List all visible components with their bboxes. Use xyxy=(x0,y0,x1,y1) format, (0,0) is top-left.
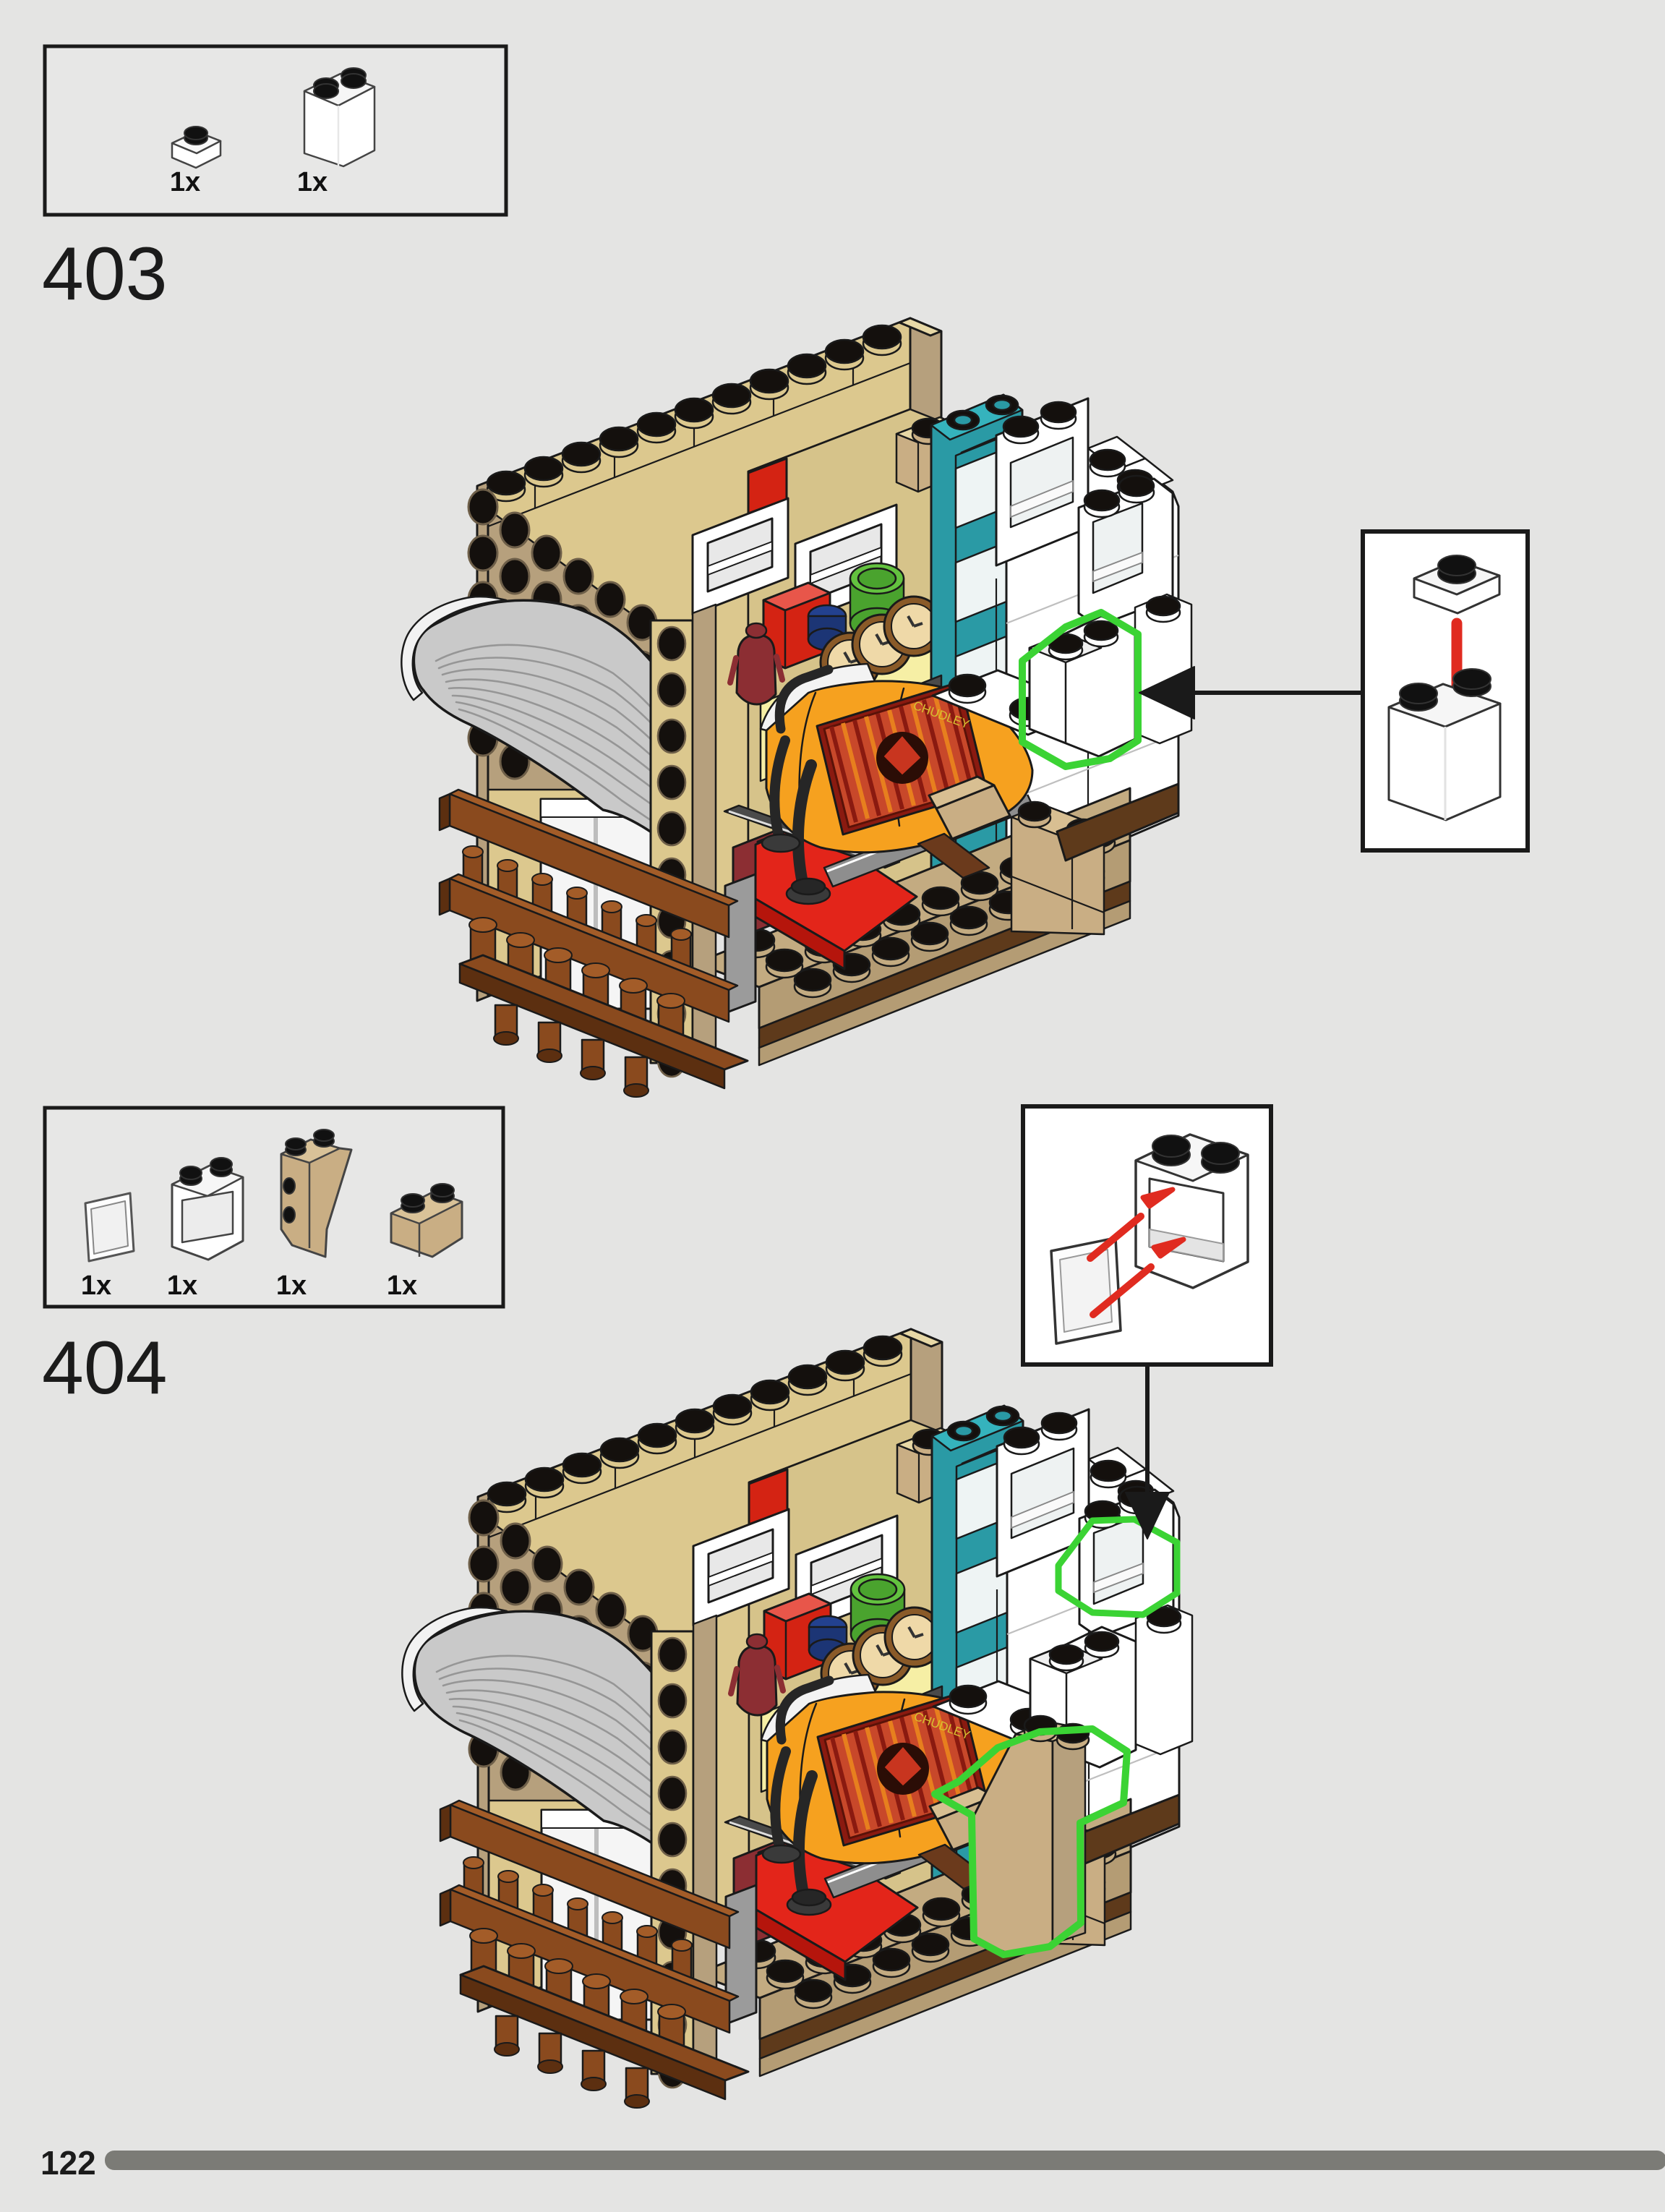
svg-text:1x: 1x xyxy=(297,167,328,197)
svg-text:1x: 1x xyxy=(167,1271,197,1301)
svg-text:122: 122 xyxy=(40,2144,96,2182)
svg-text:1x: 1x xyxy=(81,1271,111,1301)
svg-text:1x: 1x xyxy=(170,167,200,197)
svg-text:404: 404 xyxy=(42,1326,168,1410)
svg-text:1x: 1x xyxy=(387,1271,417,1301)
svg-text:403: 403 xyxy=(42,232,168,316)
svg-text:1x: 1x xyxy=(276,1271,307,1301)
